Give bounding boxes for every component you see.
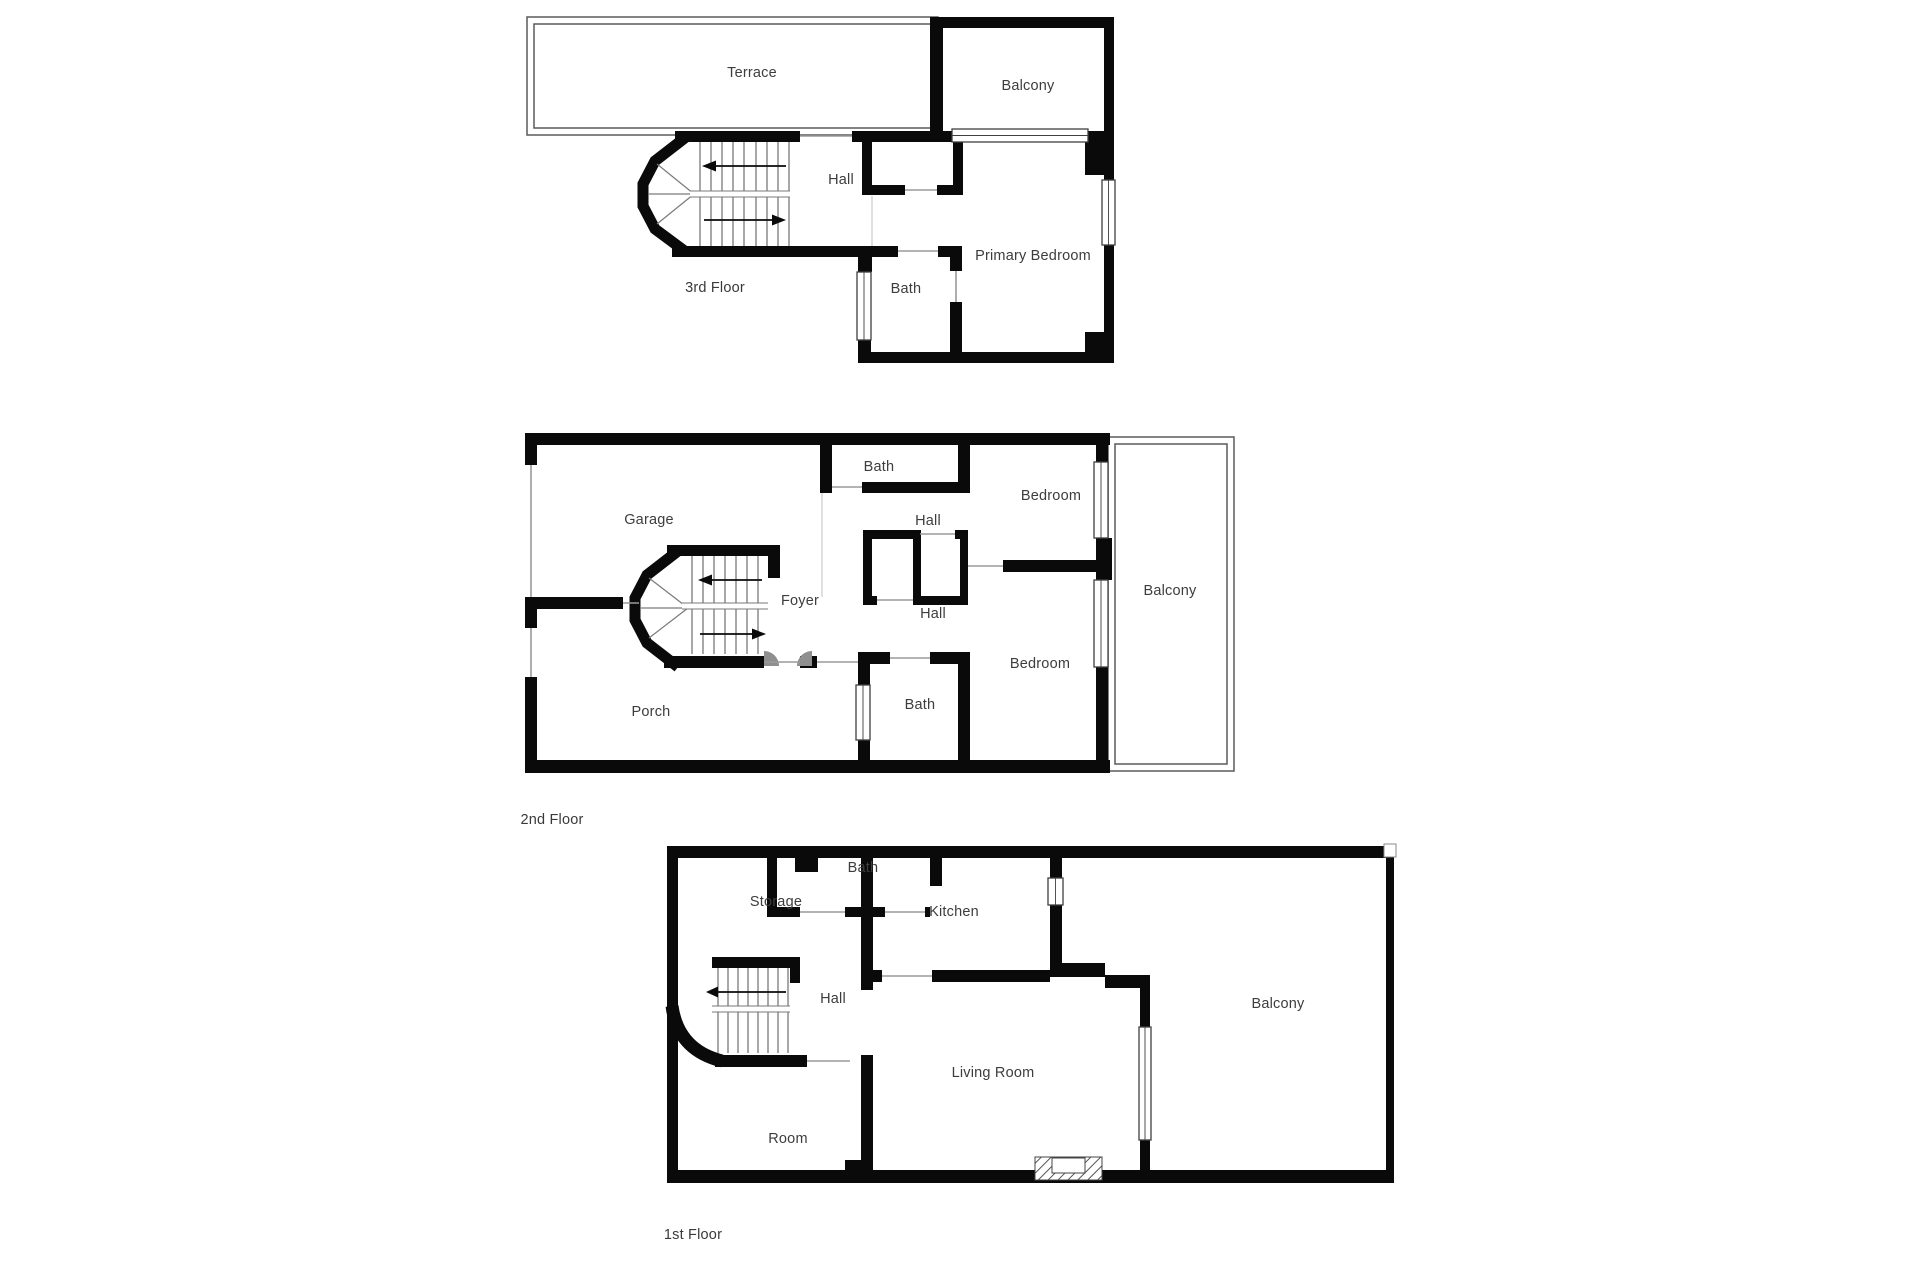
room-label-balcony-3rd: Balcony <box>1002 78 1056 94</box>
room-label-primary-bedroom: Primary Bedroom <box>975 248 1091 264</box>
room-label-hall-lower-2nd: Hall <box>920 606 946 622</box>
room-label-bath-1st: Bath <box>848 860 879 876</box>
stair-arrow-down-head-2nd <box>752 629 766 640</box>
door-swing-arc-right <box>797 651 812 666</box>
balcony-outline-inner <box>1115 444 1227 764</box>
room-label-garage: Garage <box>624 512 674 528</box>
room-label-terrace: Terrace <box>727 65 777 81</box>
stair-arrow-up-head-2nd <box>698 575 712 586</box>
floor-label-3rd: 3rd Floor <box>685 280 745 296</box>
room-label-foyer: Foyer <box>781 593 819 609</box>
stair-curve-wall <box>672 1006 722 1061</box>
floor-plan-page: Terrace Balcony Hall Primary Bedroom Bat… <box>0 0 1920 1280</box>
room-label-bedroom-upper: Bedroom <box>1021 488 1081 504</box>
room-label-hall-upper-2nd: Hall <box>915 513 941 529</box>
room-label-balcony-2nd: Balcony <box>1144 583 1198 599</box>
stair-divider-1st <box>712 1006 790 1012</box>
stair-arrow-up-head <box>702 161 716 172</box>
room-label-bath-lower-2nd: Bath <box>905 697 936 713</box>
room-label-storage: Storage <box>750 894 802 910</box>
stair-landing-wall-2nd <box>635 551 678 667</box>
room-label-living-room: Living Room <box>952 1065 1035 1081</box>
room-label-bath-3rd: Bath <box>891 281 922 297</box>
room-label-balcony-1st: Balcony <box>1252 996 1306 1012</box>
stair-divider <box>690 191 790 197</box>
stair-arrow-down-head <box>772 215 786 226</box>
floor-plan-3rd-floor: Terrace Balcony Hall Primary Bedroom Bat… <box>527 17 1115 363</box>
balcony-outline <box>1108 437 1234 771</box>
stair-arrow-head-1st <box>706 987 718 998</box>
stair-winders-2nd <box>640 578 688 638</box>
floor-plan-2nd-floor: Garage Bath Bedroom Hall Foyer Hall Balc… <box>520 433 1234 828</box>
room-label-kitchen: Kitchen <box>929 904 979 920</box>
floor-label-1st: 1st Floor <box>664 1227 722 1243</box>
floor-plan-1st-floor: Storage Bath Kitchen Hall Living Room Ba… <box>664 844 1396 1243</box>
door-openings-3rd <box>800 136 956 302</box>
floor-label-2nd: 2nd Floor <box>520 812 583 828</box>
fireplace-firebox <box>1052 1158 1085 1173</box>
door-openings-2nd <box>531 465 1003 677</box>
room-label-hall-3rd: Hall <box>828 172 854 188</box>
room-label-hall-1st: Hall <box>820 991 846 1007</box>
stair-divider-2nd <box>682 603 768 609</box>
door-swing-arc-left <box>764 651 779 666</box>
room-label-porch: Porch <box>632 704 671 720</box>
room-label-bath-upper-2nd: Bath <box>864 459 895 475</box>
room-label-bedroom-lower: Bedroom <box>1010 656 1070 672</box>
floor-plan-drawing: Terrace Balcony Hall Primary Bedroom Bat… <box>0 0 1920 1280</box>
balcony-corner-notch <box>1384 844 1396 857</box>
room-label-room: Room <box>768 1131 807 1147</box>
